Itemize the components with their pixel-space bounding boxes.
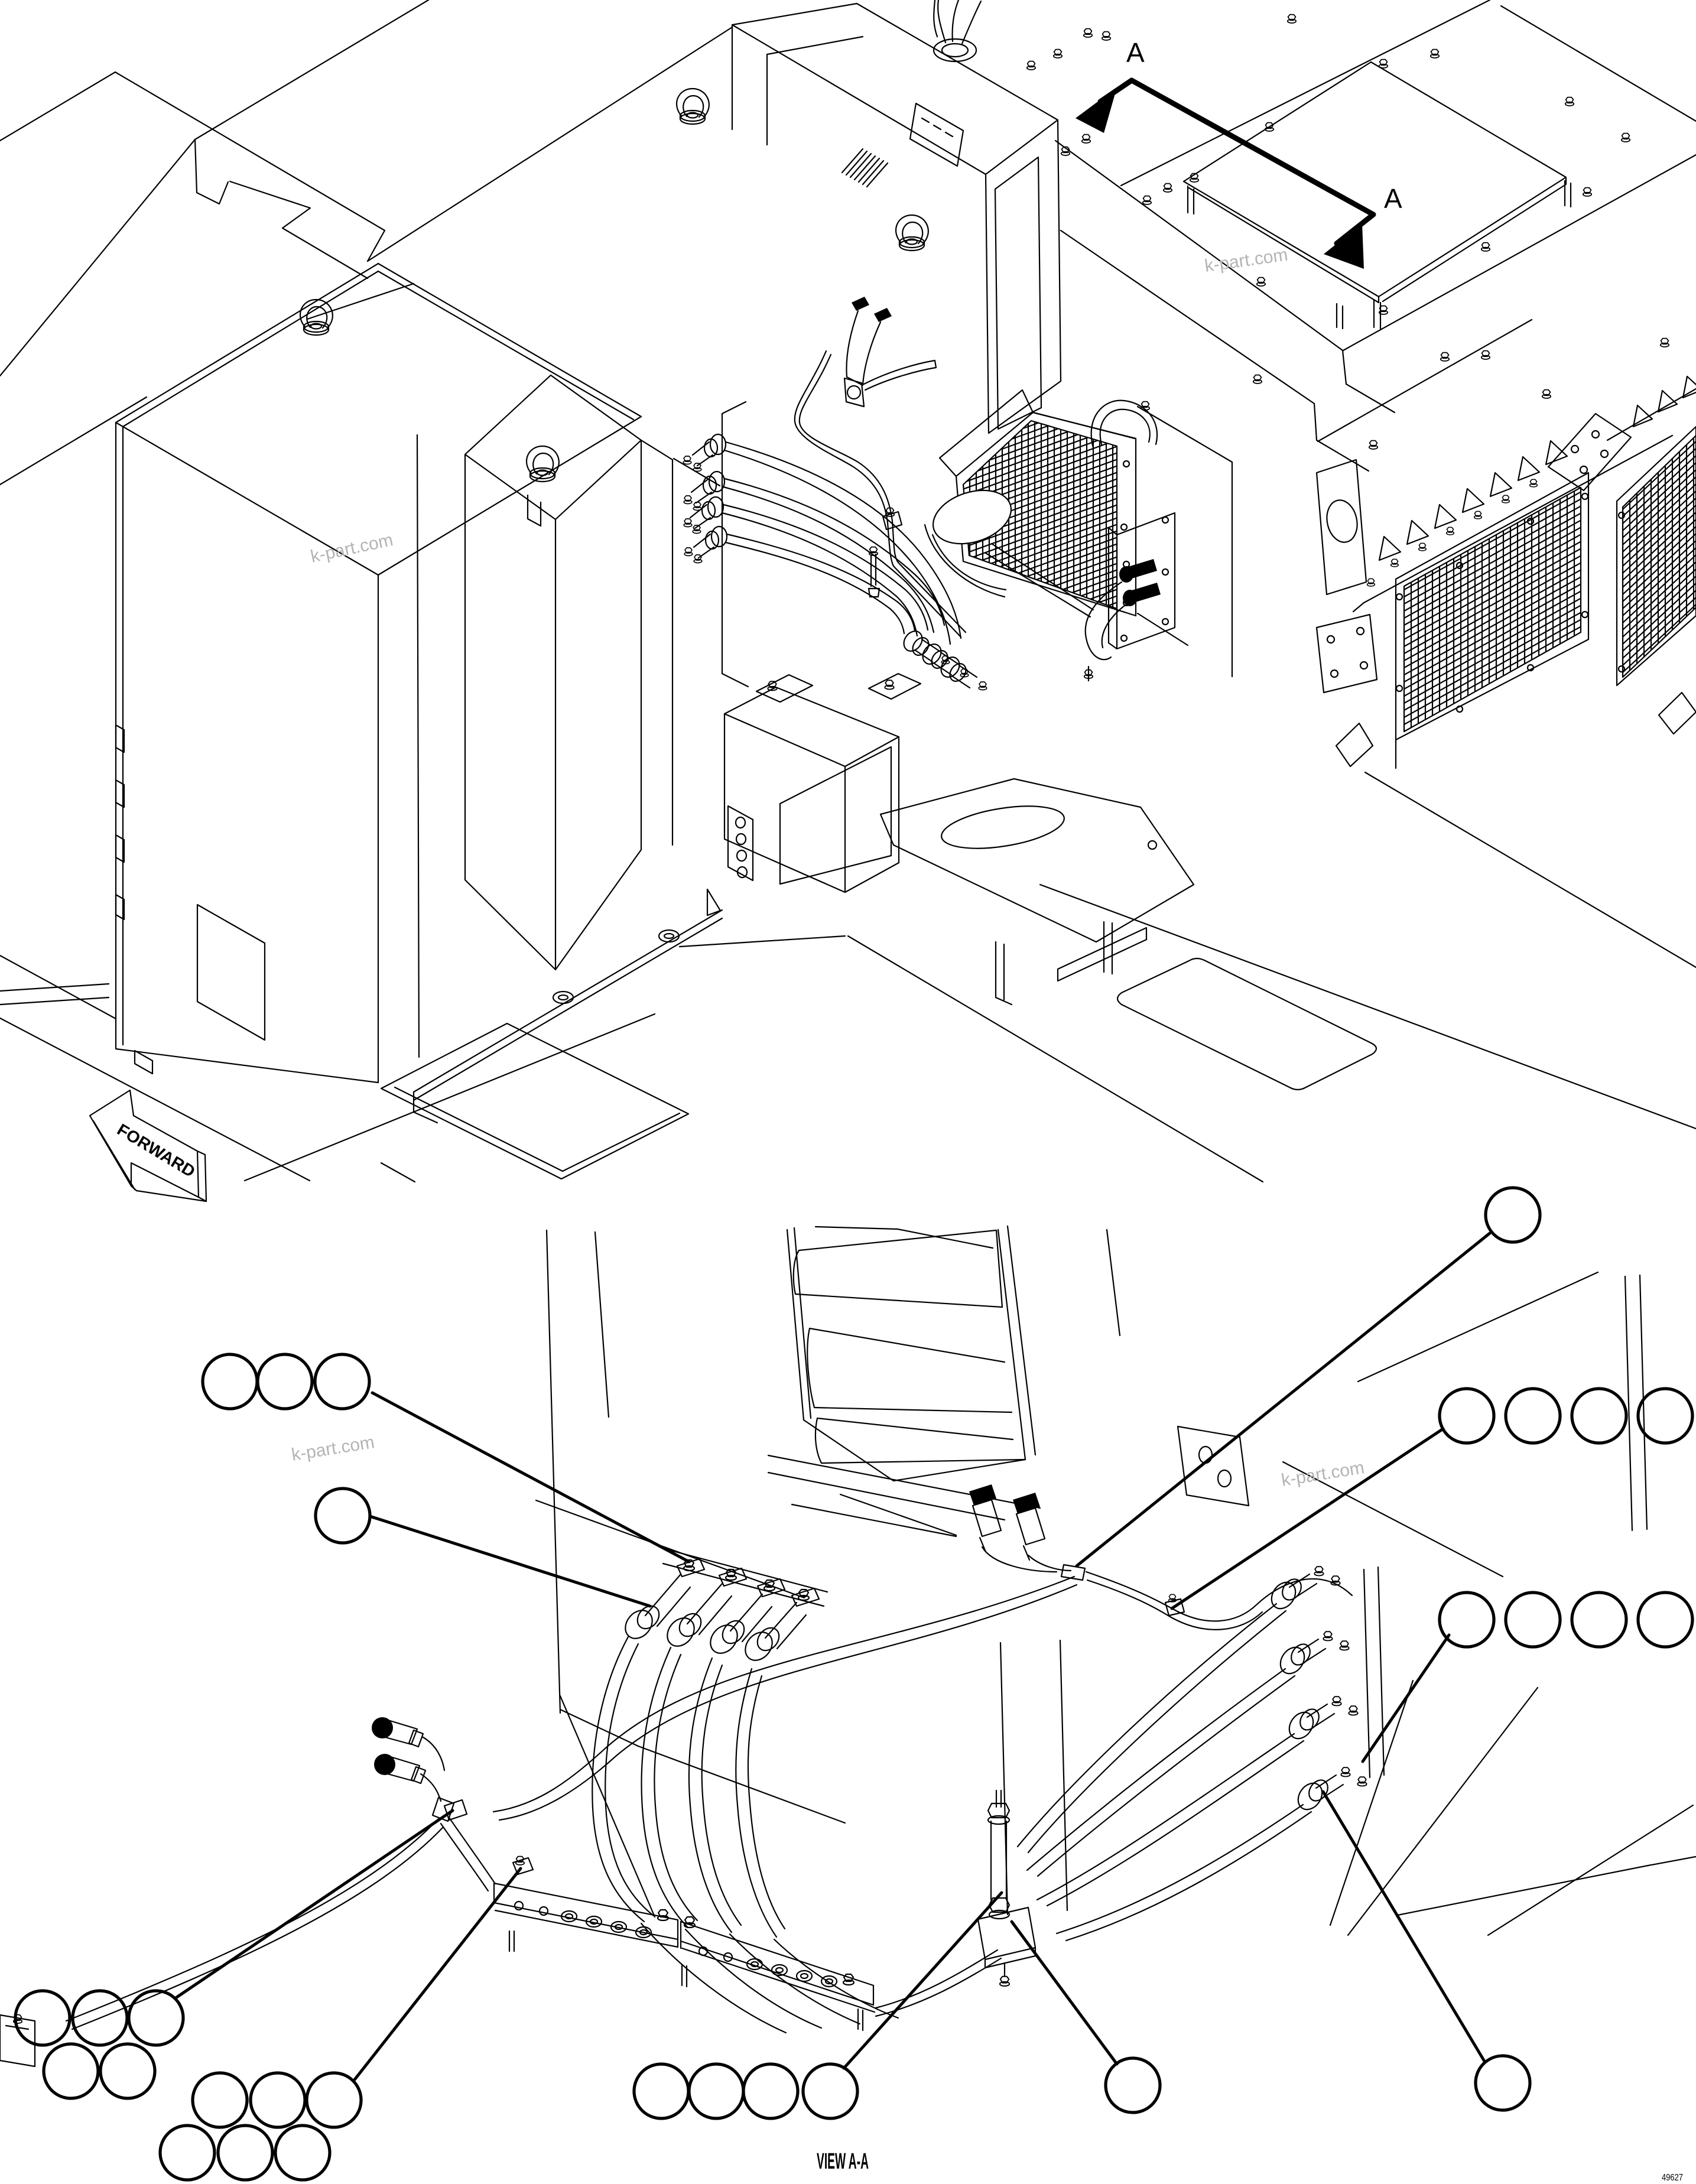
svg-text:VIEW A-A: VIEW A-A (817, 2149, 869, 2174)
svg-text:49627: 49627 (1662, 2173, 1683, 2183)
svg-text:A: A (1126, 37, 1145, 68)
svg-text:A: A (1384, 183, 1402, 214)
